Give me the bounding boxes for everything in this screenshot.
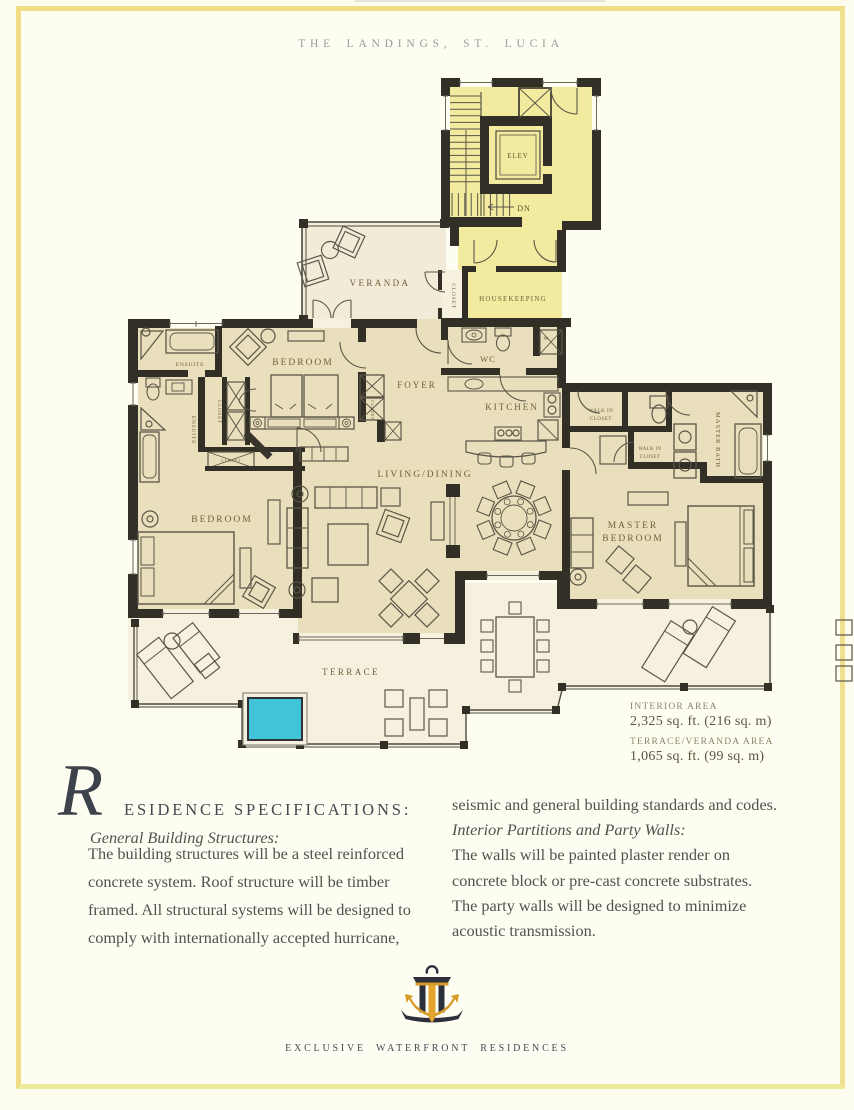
svg-text:CLOSET: CLOSET <box>590 417 612 422</box>
svg-text:HOUSEKEEPING: HOUSEKEEPING <box>479 295 547 303</box>
svg-text:ENSUITE: ENSUITE <box>190 416 196 445</box>
svg-text:ELEV: ELEV <box>507 153 528 160</box>
svg-text:MASTER: MASTER <box>608 521 659 531</box>
svg-text:DN: DN <box>517 204 531 213</box>
svg-text:TERRACE: TERRACE <box>322 667 380 677</box>
svg-text:W: W <box>543 336 549 342</box>
svg-text:CLOSET: CLOSET <box>450 283 456 309</box>
svg-text:VERANDA: VERANDA <box>350 278 411 288</box>
svg-text:WALK IN: WALK IN <box>639 447 662 452</box>
svg-text:ENSUITE: ENSUITE <box>176 362 205 368</box>
svg-text:CLOSET: CLOSET <box>221 458 241 463</box>
svg-text:MASTER BATH: MASTER BATH <box>714 412 721 468</box>
svg-text:LIVING/DINING: LIVING/DINING <box>377 470 472 480</box>
svg-text:BEDROOM: BEDROOM <box>602 534 664 544</box>
svg-text:FOYER: FOYER <box>397 380 437 390</box>
svg-text:KITCHEN: KITCHEN <box>485 402 539 412</box>
svg-text:WALK IN: WALK IN <box>589 409 613 414</box>
svg-text:CLOSET: CLOSET <box>640 455 661 460</box>
svg-text:WC: WC <box>480 354 496 364</box>
svg-text:BEDROOM: BEDROOM <box>191 515 253 525</box>
svg-text:BEDROOM: BEDROOM <box>272 358 334 368</box>
svg-text:CLOSET: CLOSET <box>370 400 375 420</box>
svg-text:CLOSET: CLOSET <box>216 400 221 424</box>
